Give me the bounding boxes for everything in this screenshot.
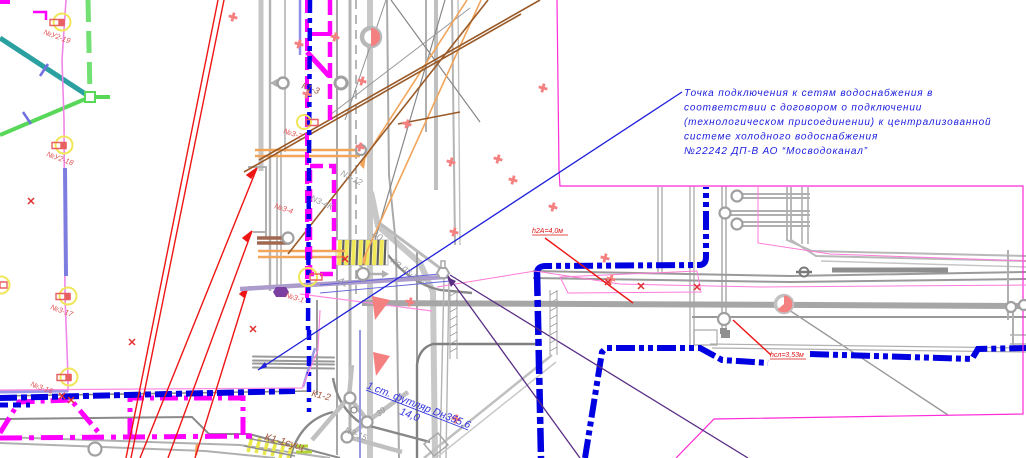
svg-text:№22242 ДП-В АО “Мосводоканал”: №22242 ДП-В АО “Мосводоканал”	[684, 146, 868, 157]
svg-text:h2A=4,0м: h2A=4,0м	[532, 228, 563, 235]
svg-text:(технологическом присоединении: (технологическом присоединении) к центра…	[684, 117, 991, 128]
svg-text:системе холодного водоснабжени: системе холодного водоснабжения	[684, 131, 878, 143]
svg-text:соответствии с договором о под: соответствии с договором о подключении	[684, 103, 922, 114]
svg-text:hсл=3,53м: hсл=3,53м	[770, 352, 804, 359]
svg-text:Точка подключения к сетям водо: Точка подключения к сетям водоснабжения …	[684, 87, 933, 99]
